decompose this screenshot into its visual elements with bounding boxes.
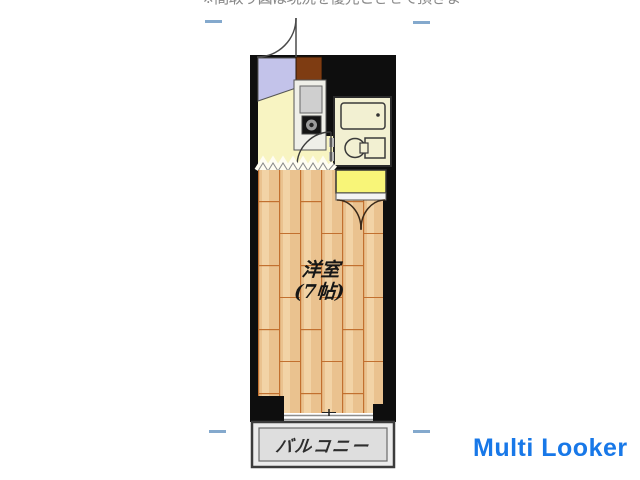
toilet-icon <box>345 138 385 158</box>
watermark-text: Multi Looker <box>473 434 628 463</box>
stove-icon <box>302 116 321 134</box>
wall-pillar <box>258 396 284 418</box>
bathroom-unit <box>329 97 391 166</box>
drain-dot <box>376 113 380 117</box>
wall-block-bottom-right <box>373 404 396 422</box>
floor-plan-drawing <box>0 0 640 480</box>
wall-mass-top-right <box>322 55 396 98</box>
kitchen-counter <box>296 57 322 80</box>
sink <box>300 86 322 113</box>
room-label-line2: (7帖) <box>266 282 372 304</box>
zigzag-partition <box>258 163 334 171</box>
room-label-line1: 洋室 <box>268 260 374 282</box>
room-label: 洋室 (7帖) <box>266 260 373 304</box>
balcony-label: バルコニー <box>255 432 392 457</box>
wall-filler <box>326 96 334 136</box>
entrance-door-arc <box>257 18 296 57</box>
